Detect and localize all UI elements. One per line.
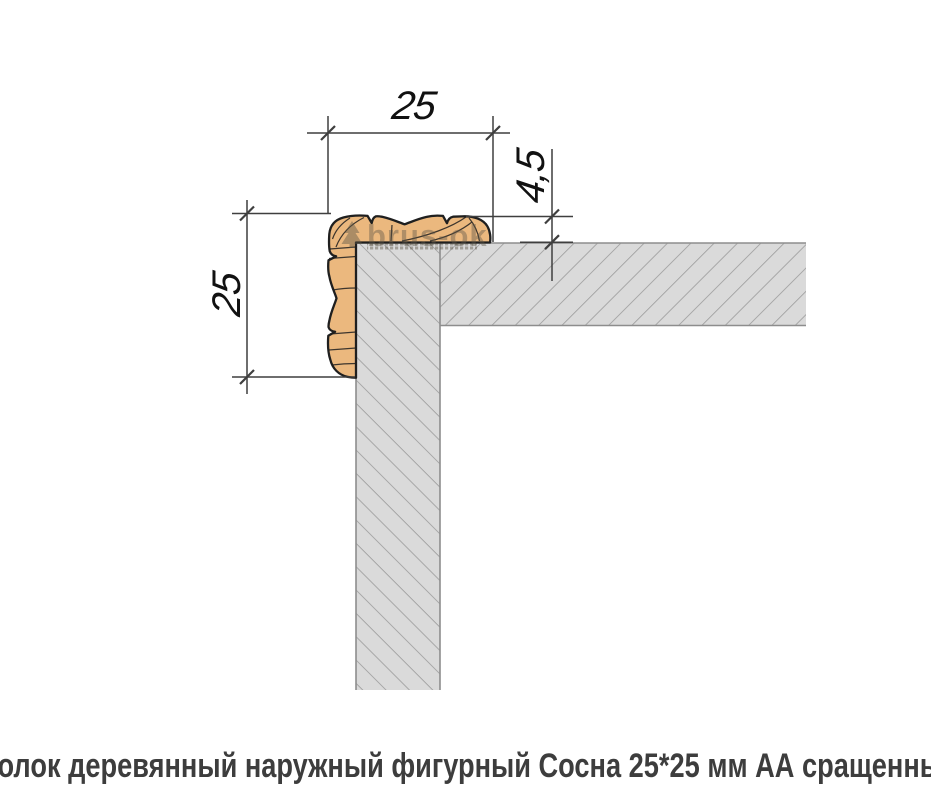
product-caption-text: Уголок деревянный наружный фигурный Сосн… <box>0 747 931 786</box>
dim-top-width-value: 25 <box>388 83 439 128</box>
dim-left-height-value: 25 <box>204 268 249 319</box>
watermark-tagline <box>367 244 477 250</box>
wall-panels <box>356 243 806 690</box>
corner-molding-section-drawing: brus-ok 25 25 4,5 <box>0 0 931 800</box>
panel-vertical <box>356 243 440 690</box>
dim-thickness-value: 4,5 <box>508 145 553 206</box>
product-caption: Уголок деревянный наружный фигурный Сосн… <box>0 744 931 788</box>
panel-horizontal <box>440 243 806 326</box>
drawing-canvas: brus-ok 25 25 4,5 <box>0 0 931 800</box>
